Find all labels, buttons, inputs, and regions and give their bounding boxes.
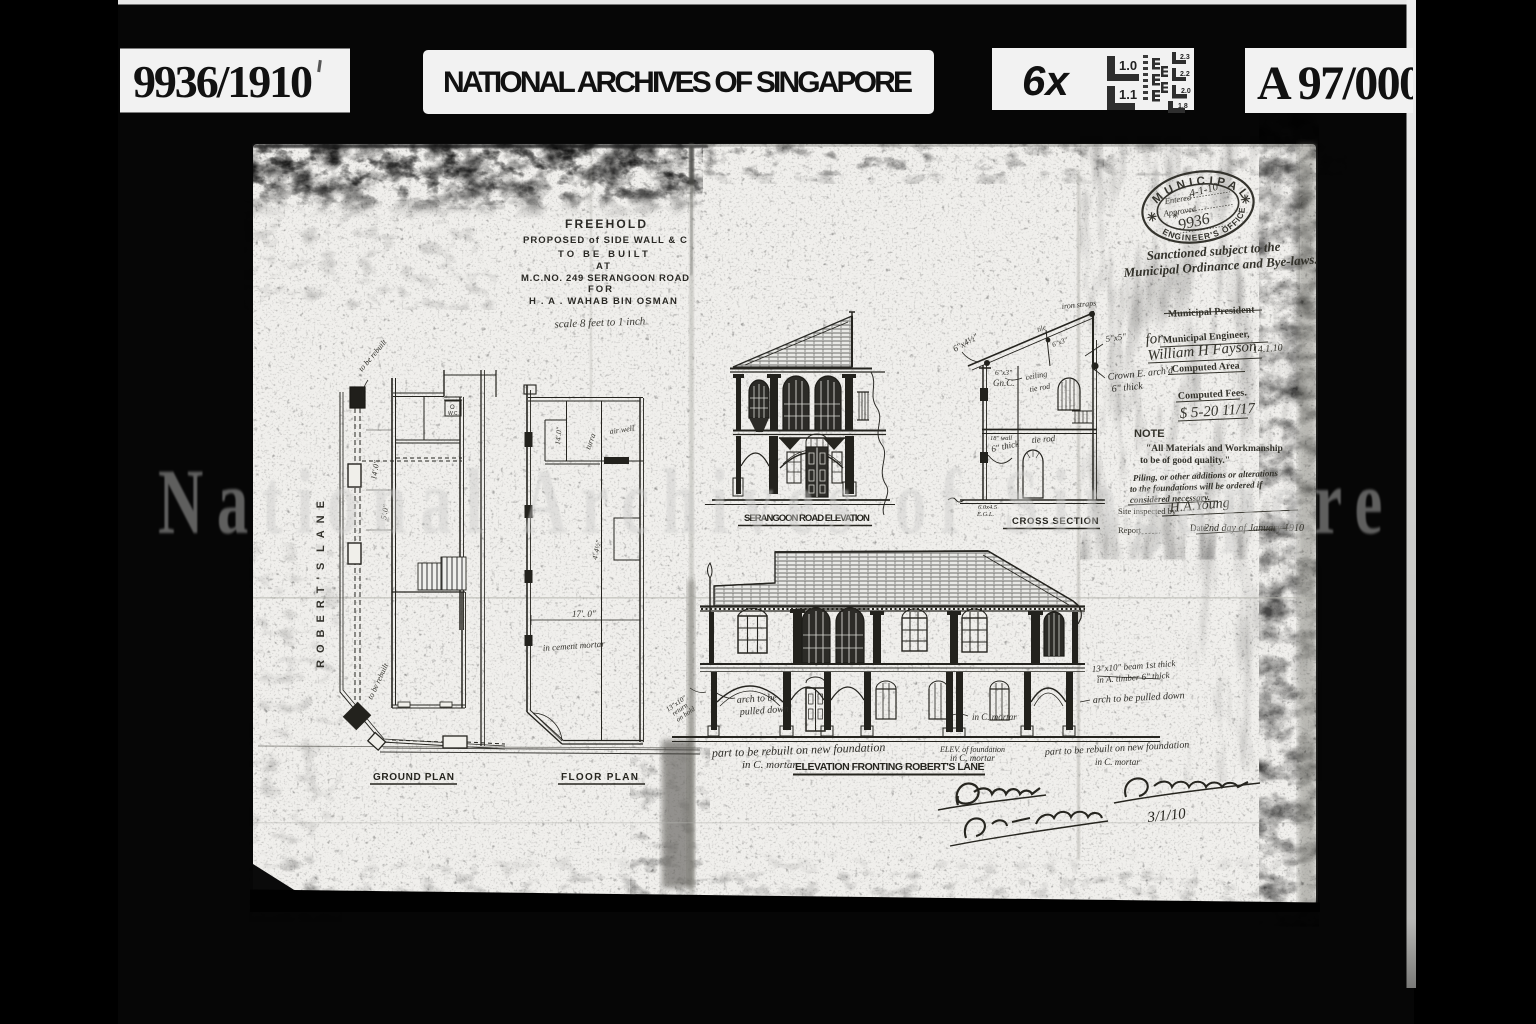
svg-text:14'.0": 14'.0" [553,426,564,445]
svg-text:2.3: 2.3 [1180,54,1190,61]
svg-text:in C. mortar: in C. mortar [972,712,1017,722]
svg-text:6x: 6x [1022,57,1070,104]
svg-text:6"x3": 6"x3" [995,368,1013,377]
svg-text:GROUND PLAN: GROUND PLAN [373,772,456,783]
svg-text:AT: AT [596,261,612,272]
svg-text:Gn.C.: Gn.C. [993,378,1015,388]
svg-text:1.8: 1.8 [1178,103,1188,110]
svg-text:TO BE BUILT: TO BE BUILT [558,249,650,260]
svg-text:NATIONAL ARCHIVES OF SINGAPORE: NATIONAL ARCHIVES OF SINGAPORE [443,66,913,99]
svg-text:2.2: 2.2 [1180,71,1190,78]
svg-text:9936/1910: 9936/1910 [133,56,313,107]
svg-text:A 97/000: A 97/000 [1257,57,1423,110]
svg-text:in C. mortar: in C. mortar [1095,757,1140,767]
svg-text:W.C.: W.C. [448,411,459,417]
svg-text:H . A . WAHAB BIN OSMAN: H . A . WAHAB BIN OSMAN [529,296,679,307]
svg-text:tie rod: tie rod [1031,433,1056,445]
svg-text:M.C.NO. 249 SERANGOON ROAD: M.C.NO. 249 SERANGOON ROAD [521,273,691,284]
svg-text:PROPOSED of SIDE WALL & C: PROPOSED of SIDE WALL & C [523,235,689,246]
svg-text:FLOOR PLAN: FLOOR PLAN [561,772,640,783]
svg-text:in C. mortar: in C. mortar [742,759,797,771]
svg-text:ROBERT'S: ROBERT'S [315,556,327,668]
svg-text:17'. 0": 17'. 0" [572,609,596,619]
svg-text:for: for [1145,330,1164,348]
svg-text:1.0: 1.0 [1119,58,1137,73]
svg-text:FREEHOLD: FREEHOLD [565,217,651,231]
svg-text:2.0: 2.0 [1181,88,1191,95]
svg-text:FOR: FOR [588,284,614,295]
svg-text:ELEVATION FRONTING ROBERT'S LA: ELEVATION FRONTING ROBERT'S LANE [795,761,985,773]
svg-text:1.1: 1.1 [1119,87,1137,102]
svg-text:NOTE: NOTE [1134,428,1165,440]
svg-text:National Archives of Singapore: National Archives of Singapore [158,451,1396,554]
